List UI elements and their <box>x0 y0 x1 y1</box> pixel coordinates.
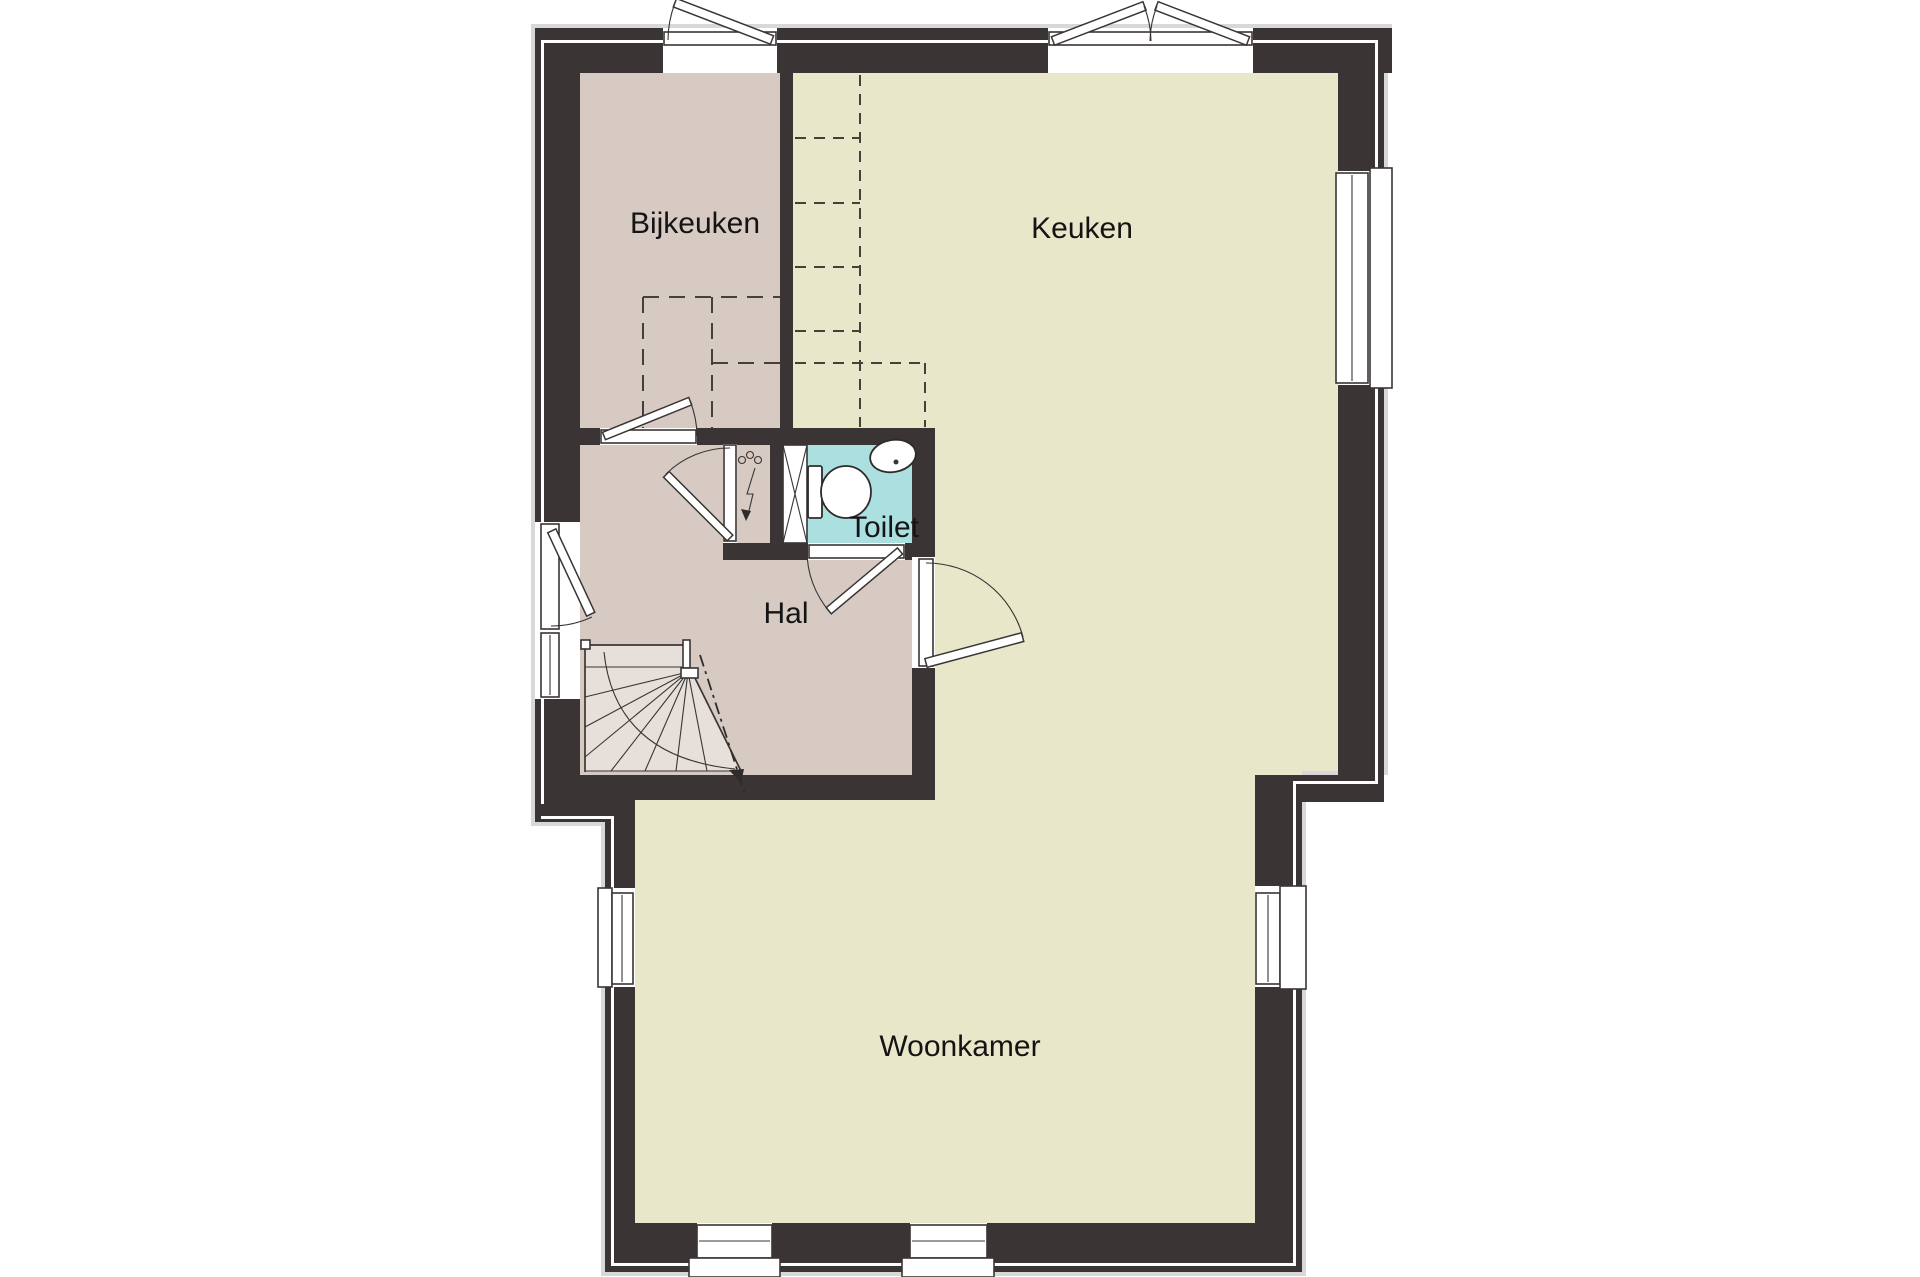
floor-plan-page: Bijkeuken Keuken Toilet Hal Woonkamer <box>0 0 1920 1277</box>
woonkamer-bottom-window-2 <box>902 1225 994 1277</box>
woonkamer-floor <box>635 800 1255 1223</box>
wall-hal-bottom <box>580 775 935 800</box>
stair-post <box>581 640 590 649</box>
keuken-right-window <box>1336 168 1392 388</box>
hal-label: Hal <box>763 597 808 630</box>
wall-left-lower <box>605 800 635 1272</box>
wall-bijkeuken-keuken <box>780 73 793 445</box>
bijkeuken-floor <box>580 73 780 428</box>
hal-left-sidelight-window <box>541 633 559 697</box>
duct-shaft-panel <box>783 445 807 543</box>
stair-newel <box>683 640 690 668</box>
basin-drain-icon <box>894 460 899 465</box>
stair-step-box <box>681 668 698 678</box>
bijkeuken-label: Bijkeuken <box>630 207 760 240</box>
keuken-label: Keuken <box>1031 212 1133 245</box>
woonkamer-left-window <box>598 888 633 987</box>
open-floor-strip <box>935 775 1255 800</box>
woonkamer-bottom-window-1 <box>689 1225 780 1277</box>
toilet-label: Toilet <box>849 511 920 544</box>
woonkamer-right-window <box>1256 886 1306 989</box>
woonkamer-label: Woonkamer <box>879 1030 1040 1063</box>
floor-plan-drawing: Bijkeuken Keuken Toilet Hal Woonkamer <box>0 0 1920 1277</box>
toilet-cistern-icon <box>808 466 822 518</box>
wall-meterkast-toilet <box>770 445 783 543</box>
